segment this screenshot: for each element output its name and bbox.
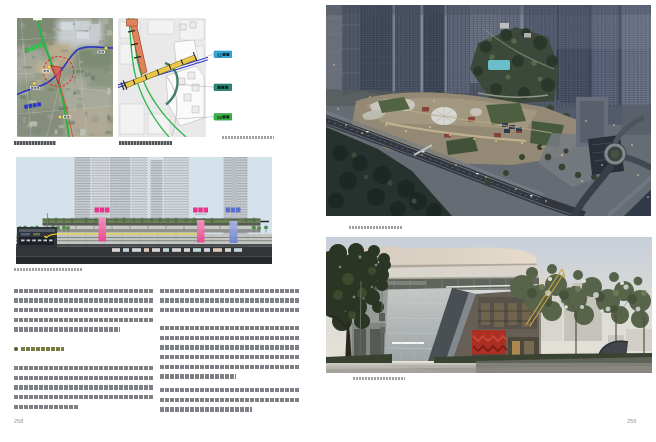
svg-text:22: 22 [217,115,223,120]
svg-text:21: 21 [217,52,223,57]
